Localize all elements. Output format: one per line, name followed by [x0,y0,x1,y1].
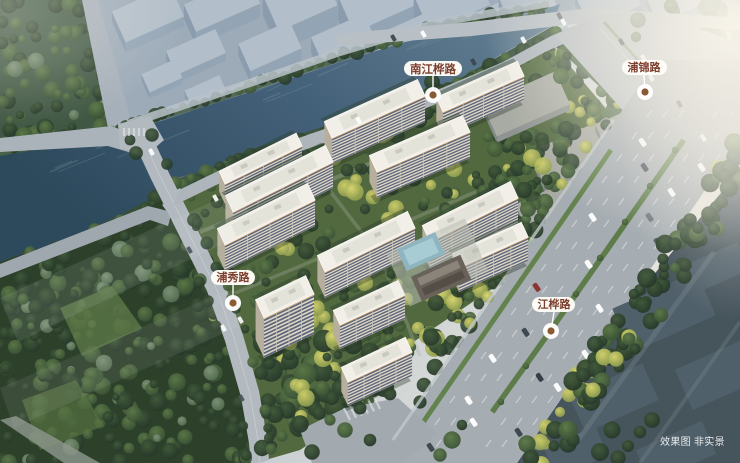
svg-text:浦秀路: 浦秀路 [217,270,251,284]
svg-text:南江桦路: 南江桦路 [410,62,456,76]
svg-text:江桦路: 江桦路 [538,297,572,311]
svg-text:效果图 非实景: 效果图 非实景 [660,435,725,448]
svg-text:浦锦路: 浦锦路 [628,60,662,74]
